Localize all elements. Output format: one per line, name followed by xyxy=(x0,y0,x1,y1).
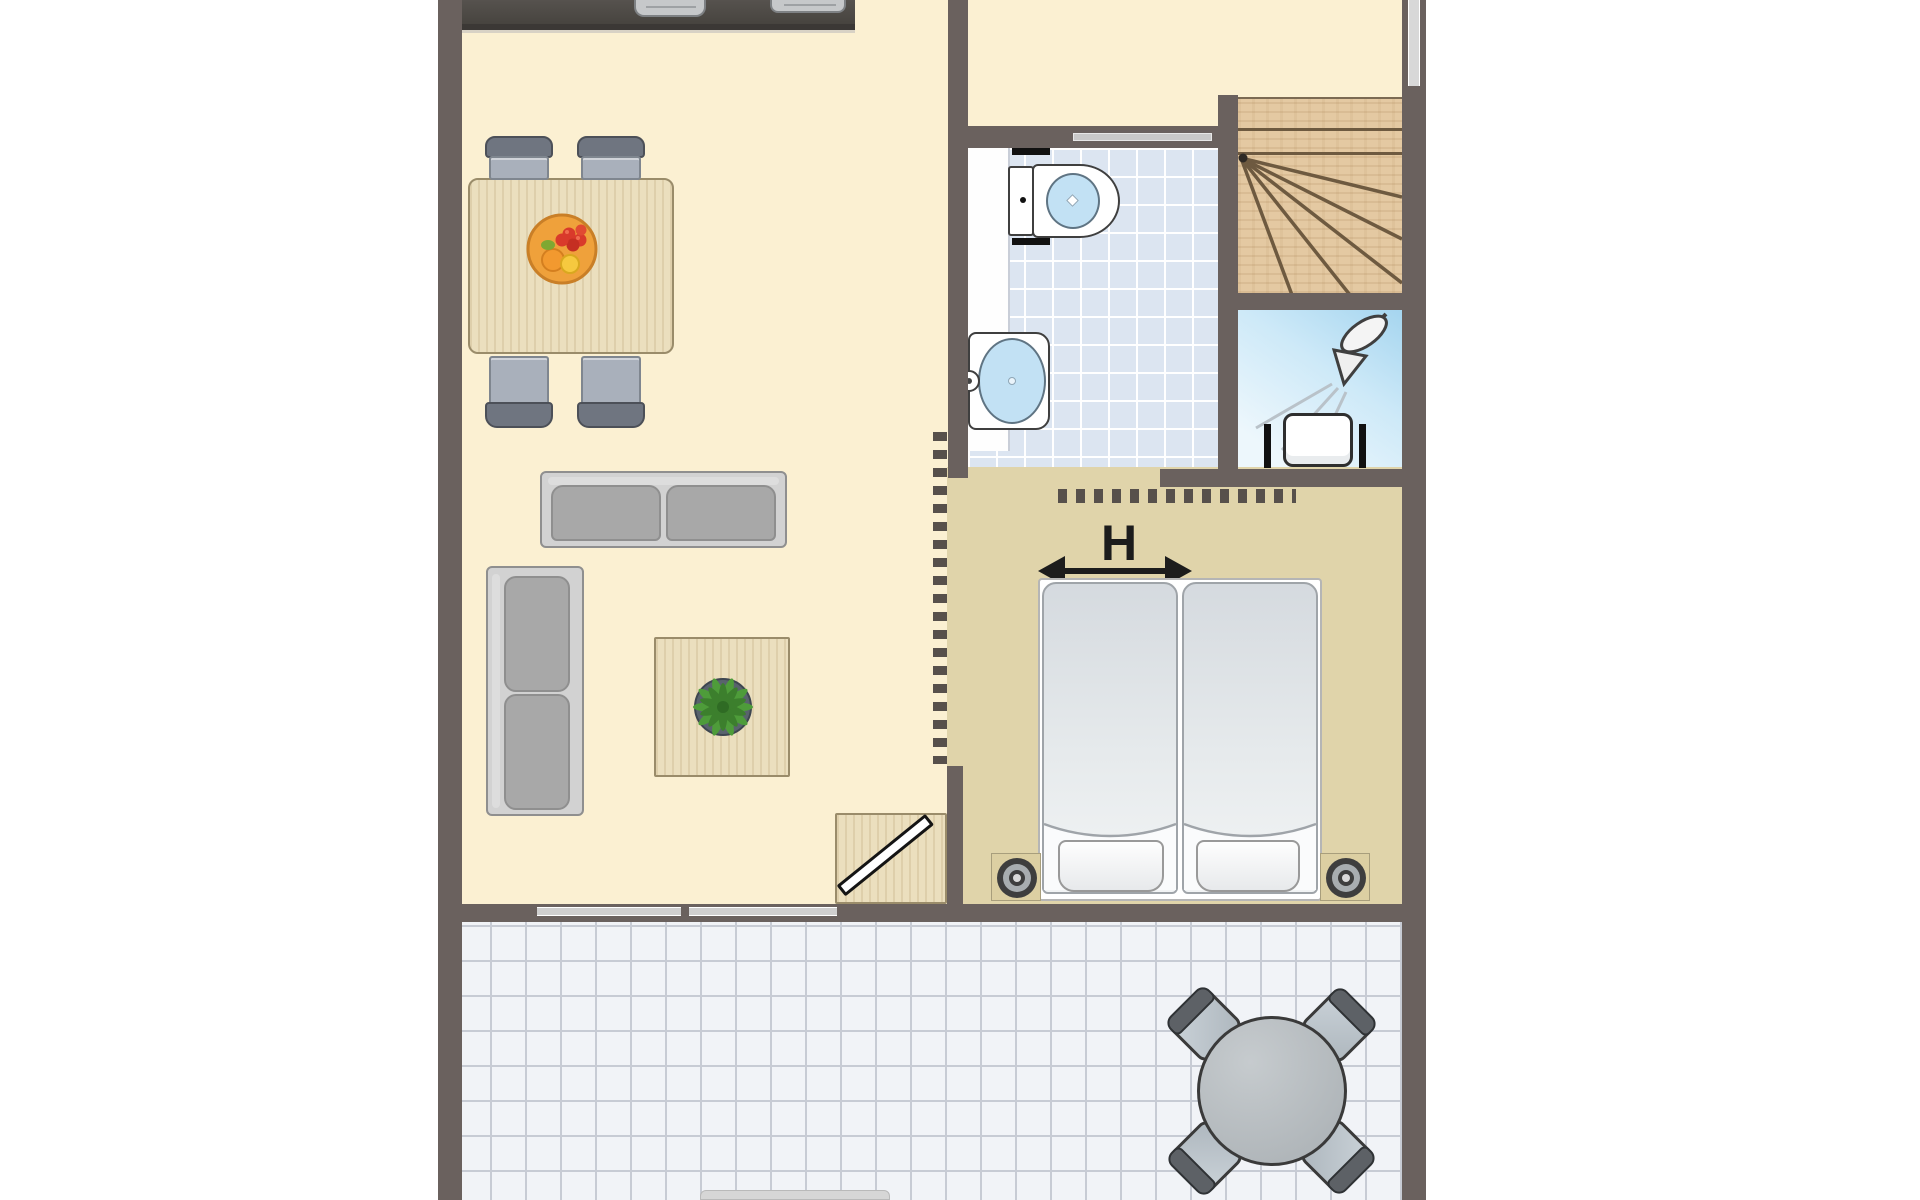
bed-height-label: H xyxy=(1096,518,1142,568)
sofa-chaise xyxy=(486,566,584,816)
staircase xyxy=(1238,97,1402,293)
shower-stool xyxy=(1283,413,1353,467)
window-hall-right xyxy=(1408,0,1420,86)
arrow-shaft xyxy=(1060,568,1170,574)
terrace-edge-object xyxy=(700,1190,890,1200)
fruit-bowl-icon xyxy=(525,212,599,286)
floor-plan: H xyxy=(0,0,1920,1200)
dining-chair xyxy=(577,136,645,180)
sofa-two-seater xyxy=(540,471,787,548)
sink-detail xyxy=(784,4,836,6)
dining-chair xyxy=(485,354,553,428)
potted-plant-icon xyxy=(681,665,765,749)
wall-stub xyxy=(947,766,963,906)
wall-stairs-left xyxy=(1218,95,1238,487)
grab-bar xyxy=(1359,424,1366,468)
dining-chair xyxy=(485,136,553,180)
wall-right xyxy=(1402,0,1426,1200)
wall-left xyxy=(438,0,462,1200)
dining-chair xyxy=(577,354,645,428)
pillow xyxy=(1058,840,1164,892)
grab-bar xyxy=(1264,424,1271,468)
pillow xyxy=(1196,840,1300,892)
ventilation-dashed-line xyxy=(1058,489,1296,503)
toilet-icon xyxy=(1008,164,1122,238)
wall-stairs-bottom xyxy=(1218,293,1402,310)
bathroom-wall-tick xyxy=(1012,148,1050,155)
counter-edge-highlight xyxy=(462,30,855,33)
bed-corner-block xyxy=(1320,853,1370,901)
bathroom-wall-tick xyxy=(1012,238,1050,245)
bed-corner-block xyxy=(991,853,1041,901)
stair-winder-lines xyxy=(1238,99,1402,295)
window-terrace-left xyxy=(537,907,681,916)
wall-bedroom-top xyxy=(1160,469,1402,487)
terrace-round-table xyxy=(1197,1016,1347,1166)
room-divider-dashed-line xyxy=(933,432,947,764)
cooktop-detail xyxy=(646,6,696,8)
bathroom-door-line-overlay xyxy=(1073,133,1212,141)
window-terrace-right xyxy=(689,907,837,916)
wall-living-hall xyxy=(948,0,968,478)
cooktop-icon xyxy=(634,0,706,17)
wash-basin-icon xyxy=(960,330,1054,432)
kitchen-sink-icon xyxy=(770,0,846,13)
